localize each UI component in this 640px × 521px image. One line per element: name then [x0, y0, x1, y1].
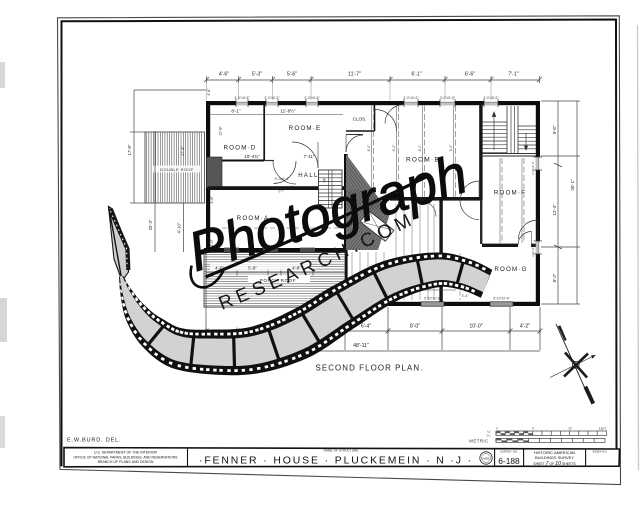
svg-text:U.S. DEPARTMENT OF THE INTERIO: U.S. DEPARTMENT OF THE INTERIOR [94, 451, 158, 455]
svg-text:HABS: HABS [482, 457, 489, 461]
svg-text:ROOM·E: ROOM·E [289, 125, 322, 132]
svg-text:4'-0": 4'-0" [418, 144, 422, 152]
svg-text:10'-0": 10'-0" [469, 324, 482, 330]
svg-text:3'-0"x5'-6": 3'-0"x5'-6" [483, 96, 499, 100]
svg-text:11'-7": 11'-7" [348, 72, 361, 78]
svg-text:3'-0"x5'-6": 3'-0"x5'-6" [264, 96, 280, 100]
svg-text:10: 10 [568, 427, 572, 431]
svg-text:3'-0"x5'-6": 3'-0"x5'-6" [403, 96, 419, 100]
svg-text:6'-6": 6'-6" [465, 72, 475, 78]
svg-text:4'-2": 4'-2" [520, 324, 530, 330]
svg-text:2'-8"x4'-6": 2'-8"x4'-6" [531, 161, 535, 174]
svg-text:15FT.: 15FT. [599, 427, 608, 431]
svg-text:5'-6": 5'-6" [287, 72, 297, 78]
svg-text:4'-0": 4'-0" [392, 144, 396, 152]
svg-text:NAME OF STRUCTURE: NAME OF STRUCTURE [323, 448, 358, 452]
svg-text:SECOND FLOOR PLAN.: SECOND FLOOR PLAN. [316, 364, 424, 373]
svg-text:ROOM·G: ROOM·G [494, 266, 527, 273]
svg-text:0: 0 [496, 427, 498, 431]
svg-text:BRANCH OF PLANS AND DESIGN: BRANCH OF PLANS AND DESIGN [98, 460, 154, 464]
svg-text:METRIC: METRIC [469, 439, 488, 444]
svg-text:3'-0"x5'-6": 3'-0"x5'-6" [440, 96, 456, 100]
svg-text:48'-11": 48'-11" [353, 343, 369, 349]
svg-text:2'-8"x4'-6": 2'-8"x4'-6" [531, 243, 535, 256]
svg-text:DOUBLE ROOF: DOUBLE ROOF [160, 167, 194, 172]
svg-text:20'-3": 20'-3" [148, 219, 153, 230]
svg-text:17'-8": 17'-8" [127, 144, 132, 155]
svg-text:12'-8": 12'-8" [219, 126, 223, 136]
svg-text:SC.: SC. [487, 433, 492, 437]
svg-text:8'-2": 8'-2" [552, 273, 557, 282]
svg-text:11'-8½": 11'-8½" [280, 108, 296, 114]
svg-text:9'-6": 9'-6" [552, 125, 557, 134]
svg-text:5: 5 [532, 427, 534, 431]
svg-text:SURVEY NO.: SURVEY NO. [500, 449, 518, 453]
svg-text:8'-1": 8'-1" [231, 109, 241, 114]
svg-text:4'-6": 4'-6" [207, 88, 211, 96]
svg-text:HALL: HALL [298, 173, 319, 179]
svg-text:4'-0": 4'-0" [367, 144, 371, 152]
svg-text:12'-4": 12'-4" [552, 204, 557, 216]
svg-text:5'-10"x2'-6": 5'-10"x2'-6" [493, 297, 510, 301]
svg-text:E.W.BURD. DEL.: E.W.BURD. DEL. [67, 438, 121, 444]
svg-text:4'-6": 4'-6" [219, 72, 229, 78]
svg-text:ROOM·D: ROOM·D [224, 145, 257, 152]
svg-text:17'-8": 17'-8" [181, 146, 185, 156]
svg-text:5'-10"x2'-6": 5'-10"x2'-6" [424, 297, 441, 301]
svg-text:BUILDINGS SURVEY: BUILDINGS SURVEY [535, 455, 574, 460]
svg-text:3'-0"x5'-6": 3'-0"x5'-6" [234, 96, 250, 100]
svg-text:CLOS.: CLOS. [353, 117, 367, 122]
svg-text:3'-0"x5'-6": 3'-0"x5'-6" [304, 96, 320, 100]
svg-text:30'-1": 30'-1" [570, 179, 575, 191]
svg-text:6'-4": 6'-4" [361, 324, 371, 330]
svg-text:·FENNER · HOUSE · PLUCKEMEIN ·: ·FENNER · HOUSE · PLUCKEMEIN · N ·J · [199, 456, 473, 467]
svg-text:4'-6": 4'-6" [210, 196, 214, 204]
svg-text:4'-4": 4'-4" [462, 294, 470, 298]
svg-text:5'-3": 5'-3" [252, 72, 262, 78]
svg-text:ROOM·F: ROOM·F [494, 190, 526, 197]
svg-text:6'-1": 6'-1" [411, 72, 421, 78]
svg-text:OFFICE OF NATIONAL PARKS, BUIL: OFFICE OF NATIONAL PARKS, BUILDINGS, AND… [73, 455, 178, 459]
svg-text:7'-11": 7'-11" [304, 154, 315, 159]
svg-text:5'-0x6'-4": 5'-0x6'-4" [275, 177, 291, 181]
svg-text:10'-4¾": 10'-4¾" [244, 154, 260, 159]
svg-text:8'-0": 8'-0" [410, 324, 420, 330]
svg-text:7'-1": 7'-1" [508, 72, 518, 78]
svg-text:6-188: 6-188 [498, 456, 520, 466]
svg-text:INDEX NO.: INDEX NO. [593, 450, 608, 454]
